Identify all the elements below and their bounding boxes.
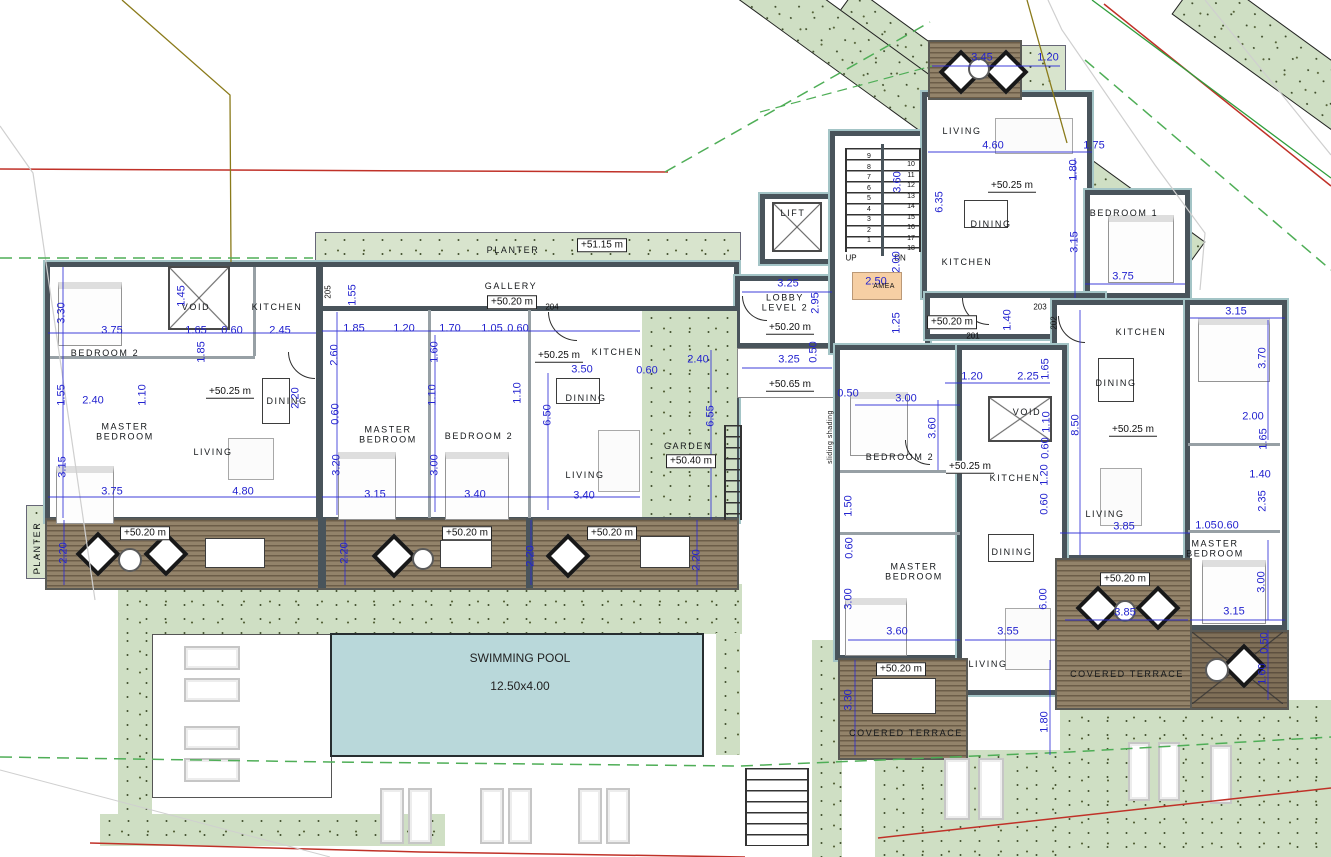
dining-table — [262, 378, 290, 424]
stair-down-label: DN — [894, 254, 906, 263]
sun-lounger — [408, 788, 432, 844]
dim-label: 1.80 — [1039, 711, 1052, 732]
bed — [445, 452, 509, 520]
stair-up-label: UP — [845, 254, 856, 263]
sun-lounger — [606, 788, 630, 844]
dining-table — [964, 200, 1008, 228]
sun-lounger — [380, 788, 404, 844]
patio-left — [152, 634, 332, 798]
terrace-post — [318, 518, 326, 588]
lift-car — [772, 202, 822, 252]
bed — [1108, 215, 1174, 283]
side-table — [118, 548, 142, 572]
bed — [850, 392, 908, 456]
sun-lounger — [944, 758, 970, 820]
sun-lounger — [184, 726, 240, 750]
lawn-bottom-center — [875, 750, 1065, 857]
planter-top — [315, 232, 741, 265]
sun-lounger — [1210, 745, 1232, 804]
partition — [1188, 530, 1280, 533]
bed — [56, 466, 114, 524]
terrace-table — [872, 678, 936, 714]
dining-table — [556, 378, 600, 404]
void-shaft — [988, 396, 1052, 442]
lower-corridor — [737, 348, 835, 398]
sun-lounger — [578, 788, 602, 844]
sofa — [1005, 608, 1051, 670]
sofa — [995, 118, 1073, 154]
planting-band — [711, 0, 954, 134]
partition — [1188, 443, 1280, 446]
partition — [50, 356, 255, 359]
bed — [58, 282, 122, 346]
floor-plan: 9 8 7 6 5 4 3 2 1 10 11 12 13 14 15 16 1… — [0, 0, 1331, 857]
sun-lounger — [978, 758, 1004, 820]
dining-table — [1098, 358, 1134, 402]
sun-lounger — [184, 646, 240, 670]
partition — [840, 532, 960, 535]
partition — [528, 310, 531, 518]
pool-name: SWIMMING POOL — [470, 651, 571, 665]
bed — [1202, 560, 1266, 624]
terrace-table — [440, 540, 492, 568]
stair-numbers-up: 9 8 7 6 5 4 3 2 1 — [867, 152, 871, 247]
garden — [642, 311, 737, 517]
lawn-strip-above-pool — [118, 584, 742, 634]
sun-lounger — [184, 678, 240, 702]
sun-lounger — [508, 788, 532, 844]
lawn-column-left — [118, 634, 152, 814]
partition — [253, 267, 256, 356]
pool-label: SWIMMING POOL 12.50x4.00 — [470, 637, 571, 693]
sun-lounger — [1128, 742, 1150, 801]
amea-room — [852, 272, 902, 300]
sofa — [598, 430, 640, 492]
terrace-post — [526, 518, 533, 588]
side-table — [968, 58, 990, 80]
lawn-right — [1060, 700, 1331, 857]
garden-stair — [724, 425, 742, 520]
void-shaft — [168, 266, 230, 330]
sun-lounger — [480, 788, 504, 844]
partition — [428, 310, 431, 518]
pool-size: 12.50x4.00 — [490, 679, 549, 693]
partition — [840, 470, 960, 473]
bed — [845, 598, 907, 656]
planting-band — [1171, 0, 1331, 168]
apartment-divider-wall — [316, 262, 323, 520]
sun-lounger — [184, 758, 240, 782]
stair-rail — [881, 144, 884, 256]
side-table — [1114, 600, 1136, 622]
small-label: sliding shading — [827, 410, 835, 464]
bed — [338, 452, 396, 520]
bed — [1198, 318, 1270, 382]
dining-table — [988, 534, 1034, 562]
sofa — [1100, 468, 1142, 526]
covered-terrace-east — [1055, 558, 1192, 710]
external-stair — [745, 768, 809, 846]
side-table — [412, 548, 434, 570]
terrace-table — [640, 536, 690, 568]
stair-numbers-down: 10 11 12 13 14 15 16 17 18 — [907, 160, 915, 255]
side-table — [1205, 658, 1229, 682]
planter-strip-right-of-pool — [716, 633, 740, 755]
terrace-table — [205, 538, 265, 568]
sofa — [228, 438, 274, 480]
sun-lounger — [1158, 742, 1180, 801]
